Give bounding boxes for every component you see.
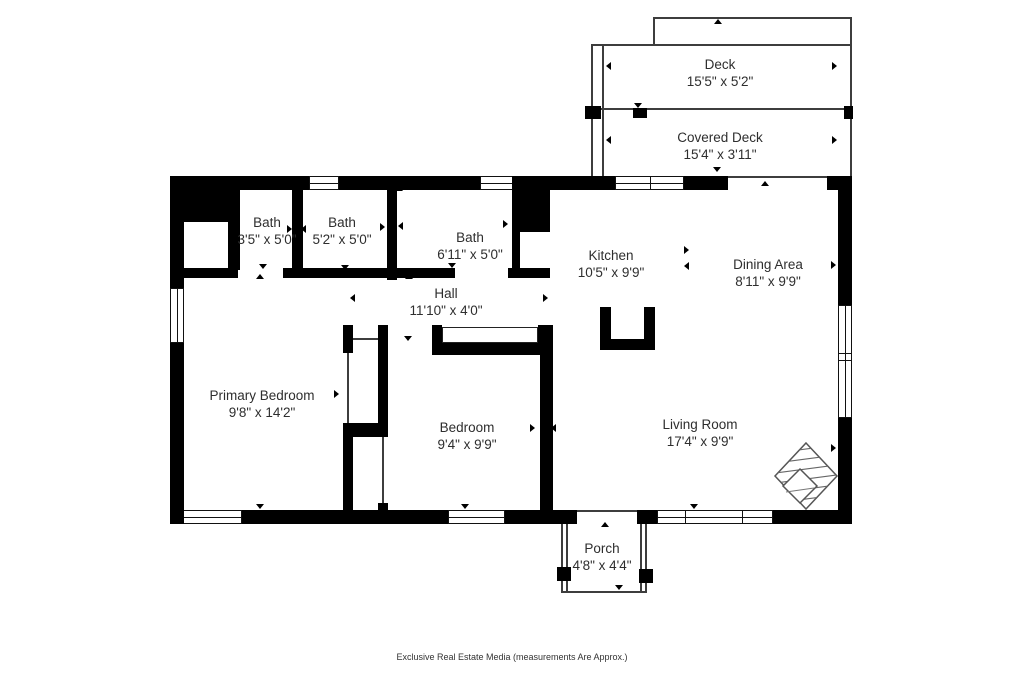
tick-left-icon — [301, 225, 306, 233]
wall-segment — [339, 176, 480, 190]
window-divider — [839, 353, 851, 354]
deck-rail-line — [602, 44, 604, 176]
room-dims: 11'10" x 4'0" — [409, 302, 482, 319]
tick-down-icon — [404, 336, 412, 341]
room-label-primary-bedroom: Primary Bedroom9'8" x 14'2" — [209, 387, 314, 421]
porch-post — [557, 567, 571, 581]
room-label-bath-3: Bath6'11" x 5'0" — [437, 229, 503, 263]
deck-post — [844, 106, 853, 119]
porch-rail-line — [561, 591, 647, 593]
tick-down-icon — [461, 504, 469, 509]
porch-rail-line — [566, 524, 568, 593]
window-symbol — [480, 176, 516, 190]
room-label-bath-1: Bath3'5" x 5'0" — [237, 214, 296, 248]
window-symbol — [448, 510, 505, 524]
tick-right-icon — [832, 136, 837, 144]
tick-up-icon — [603, 184, 611, 189]
tick-left-icon — [398, 222, 403, 230]
window-symbol — [838, 305, 852, 418]
window-symbol — [657, 510, 773, 524]
tick-right-icon — [380, 223, 385, 231]
tick-up-icon — [261, 183, 269, 188]
wall-segment — [512, 232, 520, 278]
closet-door-line — [347, 353, 349, 423]
tick-down-icon — [690, 504, 698, 509]
wall-segment — [540, 325, 553, 518]
window-symbol — [170, 288, 184, 343]
tick-up-icon — [256, 274, 264, 279]
room-name: Hall — [409, 285, 482, 302]
window-divider — [685, 511, 686, 523]
room-name: Kitchen — [578, 247, 645, 264]
window-symbol — [183, 510, 242, 524]
room-dims: 6'11" x 5'0" — [437, 246, 503, 263]
wall-segment — [181, 268, 238, 278]
tick-left-icon — [350, 294, 355, 302]
tick-down-icon — [448, 263, 456, 268]
room-dims: 9'4" x 9'9" — [437, 436, 496, 453]
room-dims: 5'2" x 5'0" — [312, 231, 371, 248]
window-divider — [742, 511, 743, 523]
wall-segment — [378, 503, 388, 518]
deck-rail-line — [591, 108, 852, 110]
footer-credit: Exclusive Real Estate Media (measurement… — [0, 652, 1024, 662]
door-opening-line — [728, 176, 827, 178]
deck-rail-line — [653, 17, 852, 19]
room-label-living-room: Living Room17'4" x 9'9" — [662, 416, 737, 450]
wall-segment — [343, 423, 353, 518]
tick-right-icon — [543, 294, 548, 302]
room-name: Primary Bedroom — [209, 387, 314, 404]
tick-down-icon — [341, 265, 349, 270]
tick-down-icon — [256, 504, 264, 509]
room-name: Bath — [437, 229, 503, 246]
deck-rail-line — [850, 17, 852, 176]
porch-post — [639, 569, 653, 583]
room-name: Bedroom — [437, 419, 496, 436]
room-name: Deck — [687, 56, 754, 73]
room-dims: 15'5" x 5'2" — [687, 73, 754, 90]
tick-down-icon — [615, 585, 623, 590]
room-label-porch: Porch4'8" x 4'4" — [572, 540, 631, 574]
room-label-deck: Deck15'5" x 5'2" — [687, 56, 754, 90]
closet-door-line — [382, 437, 384, 503]
tick-right-icon — [503, 220, 508, 228]
tick-right-icon — [334, 390, 339, 398]
wall-segment — [387, 190, 397, 280]
room-label-bath-2: Bath5'2" x 5'0" — [312, 214, 371, 248]
room-dims: 9'8" x 14'2" — [209, 404, 314, 421]
tick-up-icon — [714, 19, 722, 24]
deck-rail-line — [591, 44, 852, 46]
wall-segment — [343, 325, 353, 353]
room-name: Covered Deck — [677, 129, 763, 146]
wall-mass — [170, 176, 240, 222]
room-label-kitchen: Kitchen10'5" x 9'9" — [578, 247, 645, 281]
tick-right-icon — [831, 261, 836, 269]
tick-left-icon — [175, 416, 180, 424]
floor-plan: Deck15'5" x 5'2" Covered Deck15'4" x 3'1… — [0, 0, 1024, 682]
deck-post — [633, 108, 647, 118]
window-divider — [650, 177, 651, 189]
wall-segment — [170, 343, 184, 524]
room-dims: 3'5" x 5'0" — [237, 231, 296, 248]
wall-segment — [684, 176, 728, 190]
window-divider — [839, 360, 851, 361]
tick-down-icon — [259, 264, 267, 269]
wall-segment — [838, 176, 852, 305]
wall-mass — [512, 176, 550, 232]
tick-left-icon — [175, 390, 180, 398]
wall-segment — [283, 268, 455, 278]
tick-up-icon — [601, 522, 609, 527]
wall-segment — [637, 510, 657, 524]
tick-left-icon — [606, 136, 611, 144]
room-name: Living Room — [662, 416, 737, 433]
tick-up-icon — [395, 186, 403, 191]
tick-up-icon — [462, 346, 470, 351]
closet-symbol — [442, 327, 538, 343]
room-dims: 8'11" x 9'9" — [733, 273, 803, 290]
wall-segment — [378, 325, 388, 437]
room-dims: 17'4" x 9'9" — [662, 433, 737, 450]
room-name: Bath — [237, 214, 296, 231]
room-dims: 10'5" x 9'9" — [578, 264, 645, 281]
wall-segment — [432, 343, 548, 355]
tick-left-icon — [551, 424, 556, 432]
tick-left-icon — [606, 62, 611, 70]
closet-door-line — [353, 338, 378, 340]
window-symbol — [309, 176, 339, 190]
room-dims: 15'4" x 3'11" — [677, 146, 763, 163]
kitchen-counter-wall — [600, 339, 655, 350]
deck-post — [585, 106, 601, 119]
tick-right-icon — [530, 424, 535, 432]
tick-up-icon — [405, 274, 413, 279]
tick-down-icon — [713, 167, 721, 172]
tick-up-icon — [761, 181, 769, 186]
compass-rose-icon — [772, 440, 840, 512]
tick-left-icon — [389, 223, 394, 231]
wall-segment — [343, 423, 388, 437]
room-label-bedroom: Bedroom9'4" x 9'9" — [437, 419, 496, 453]
tick-left-icon — [684, 262, 689, 270]
porch-rail-line — [561, 524, 563, 593]
tick-down-icon — [634, 103, 642, 108]
deck-rail-line — [653, 17, 655, 46]
room-label-hall: Hall11'10" x 4'0" — [409, 285, 482, 319]
tick-right-icon — [684, 246, 689, 254]
window-symbol — [615, 176, 684, 190]
room-name: Bath — [312, 214, 371, 231]
room-name: Dining Area — [733, 256, 803, 273]
door-opening-line — [577, 510, 637, 512]
room-label-covered-deck: Covered Deck15'4" x 3'11" — [677, 129, 763, 163]
room-dims: 4'8" x 4'4" — [572, 557, 631, 574]
tick-right-icon — [832, 62, 837, 70]
room-label-dining-area: Dining Area8'11" x 9'9" — [733, 256, 803, 290]
wall-segment — [838, 418, 852, 524]
room-name: Porch — [572, 540, 631, 557]
